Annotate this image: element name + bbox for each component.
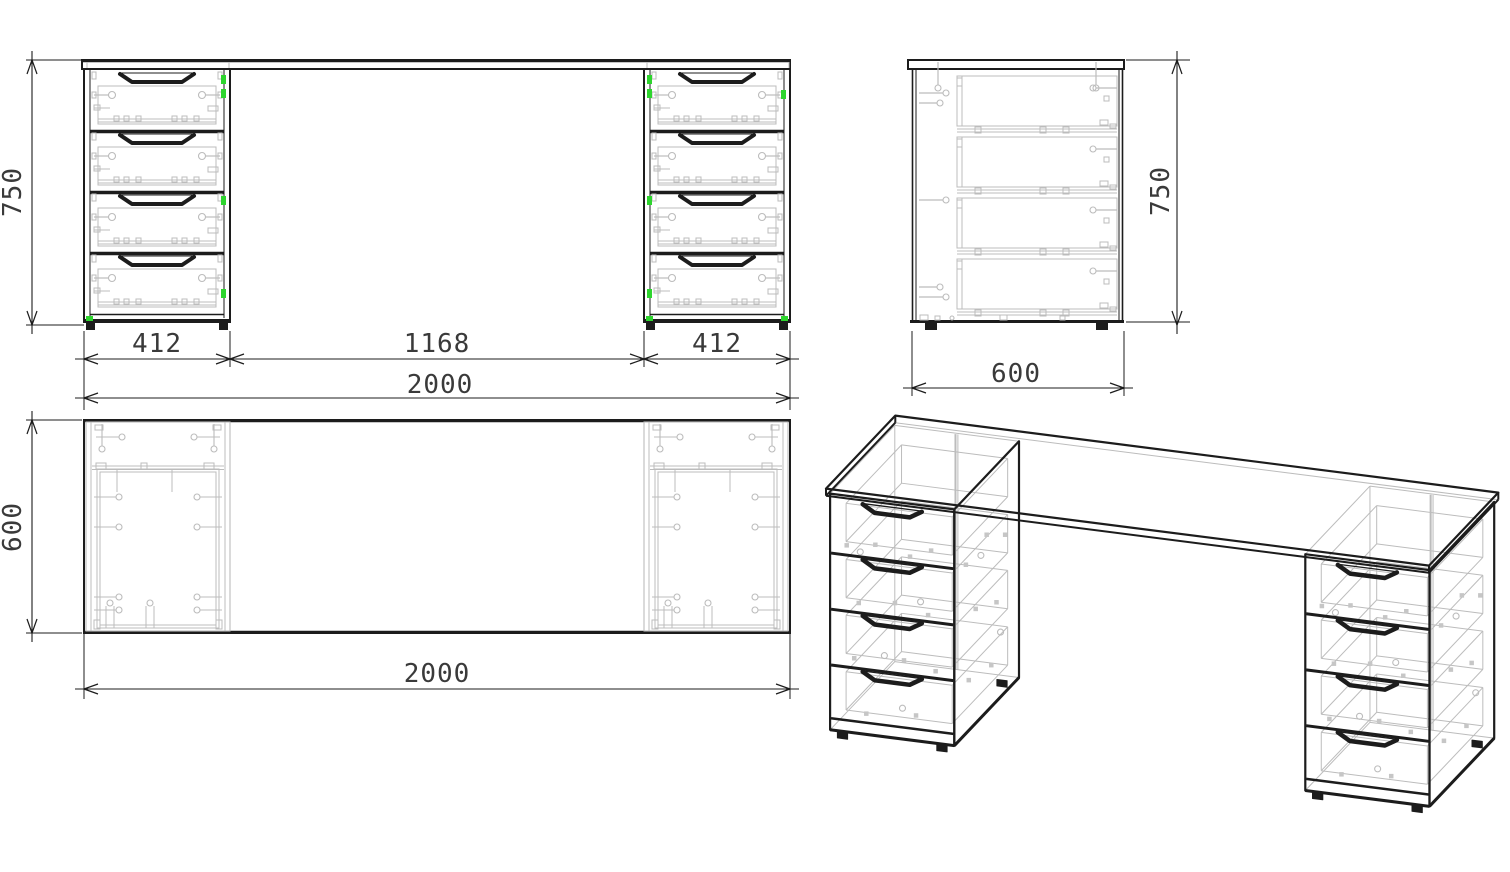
dim-top-depth: 600	[0, 502, 28, 552]
isometric-view	[826, 416, 1498, 813]
dim-front-pedestal-left: 412	[132, 329, 182, 359]
top-view	[84, 420, 790, 633]
drawing-canvas: 750 412 1168 412 2000 750 600 600 2000	[0, 0, 1510, 872]
dim-side-depth: 600	[991, 359, 1041, 389]
dim-top-total-width: 2000	[404, 659, 471, 689]
dim-front-height: 750	[0, 167, 28, 217]
front-view	[82, 60, 790, 330]
dim-front-total-width: 2000	[407, 370, 474, 400]
dim-front-pedestal-right: 412	[692, 329, 742, 359]
dim-side-height: 750	[1146, 166, 1176, 216]
technical-drawing: 750 412 1168 412 2000 750 600 600 2000	[0, 0, 1510, 872]
dim-front-knee-gap: 1168	[404, 329, 471, 359]
side-view	[908, 60, 1124, 330]
